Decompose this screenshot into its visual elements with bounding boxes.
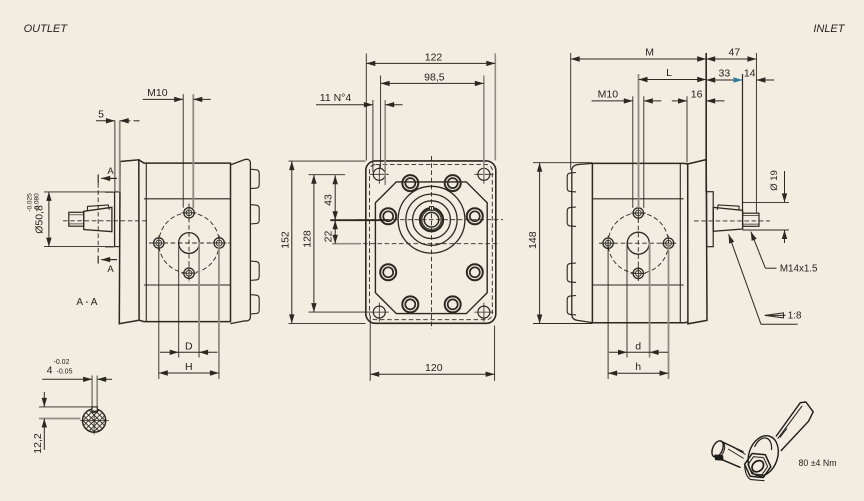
svg-text:h: h (635, 361, 641, 373)
svg-text:INLET: INLET (813, 23, 845, 35)
svg-text:128: 128 (301, 230, 313, 248)
svg-text:d: d (635, 340, 641, 352)
svg-text:5: 5 (98, 108, 104, 120)
svg-text:33: 33 (719, 68, 731, 80)
svg-text:Ø 19: Ø 19 (769, 170, 780, 191)
svg-text:M10: M10 (598, 88, 619, 100)
svg-text:16: 16 (691, 88, 703, 100)
svg-text:M10: M10 (147, 87, 168, 99)
svg-text:A: A (107, 264, 114, 275)
svg-text:-0.05: -0.05 (57, 369, 73, 376)
svg-text:-0.080: -0.080 (34, 193, 41, 212)
svg-text:-0.02: -0.02 (54, 359, 70, 366)
svg-text:148: 148 (527, 231, 539, 249)
svg-text:80 ±4 Nm: 80 ±4 Nm (799, 458, 837, 468)
svg-text:11 N°4: 11 N°4 (320, 92, 352, 104)
svg-text:OUTLET: OUTLET (24, 23, 69, 35)
svg-text:-0.025: -0.025 (27, 193, 34, 212)
svg-text:A: A (107, 166, 114, 177)
svg-text:12,2: 12,2 (32, 433, 44, 454)
svg-text:L: L (666, 67, 672, 79)
svg-text:43: 43 (323, 194, 335, 206)
svg-text:22: 22 (323, 231, 335, 243)
svg-text:M14x1.5: M14x1.5 (780, 264, 818, 275)
svg-text:47: 47 (729, 47, 741, 59)
svg-text:120: 120 (425, 362, 443, 374)
svg-text:4: 4 (47, 365, 53, 377)
svg-text:A - A: A - A (76, 297, 97, 308)
svg-text:M: M (645, 47, 654, 59)
svg-text:122: 122 (425, 51, 443, 63)
svg-text:152: 152 (279, 231, 291, 249)
svg-text:D: D (185, 340, 193, 352)
svg-text:1:8: 1:8 (788, 310, 802, 321)
svg-text:14: 14 (744, 68, 756, 80)
svg-text:98,5: 98,5 (424, 71, 445, 83)
svg-text:H: H (185, 361, 193, 373)
